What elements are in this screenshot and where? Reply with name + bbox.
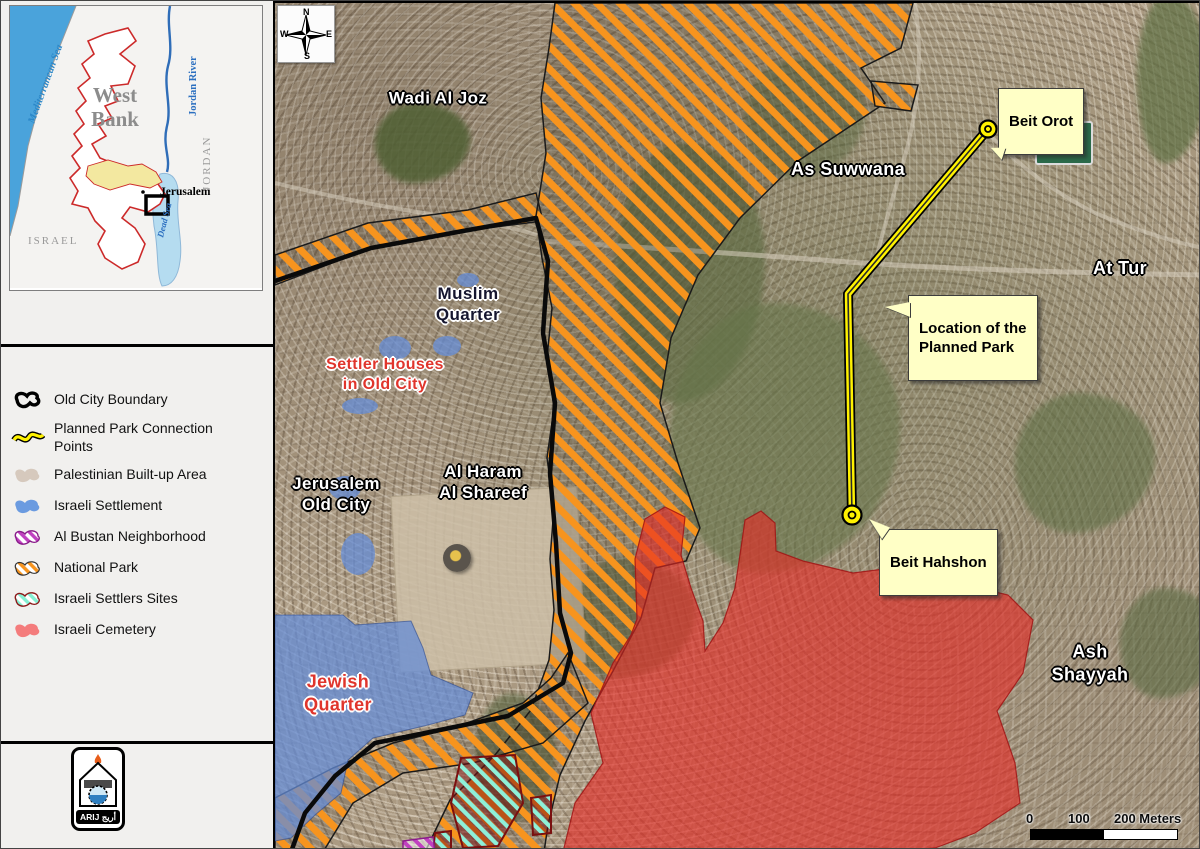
callout-beit-hahshon: Beit Hahshon (879, 529, 998, 596)
arij-logo-graphic: ARIJ أريج (74, 750, 122, 828)
national-park-icon (11, 557, 45, 579)
scale-tick-0: 0 (1026, 811, 1033, 826)
jerusalem-dot (141, 190, 145, 194)
place-label-as-suwwana: As Suwwana (791, 158, 905, 181)
panel-divider-bottom (1, 741, 273, 744)
inset-jerusalem-label: Jerusalem (160, 186, 211, 198)
place-label-at-tur: At Tur (1093, 257, 1147, 280)
logo-text: ARIJ أريج (80, 810, 117, 823)
place-label-wadi-al-joz: Wadi Al Joz (389, 87, 488, 108)
inset-west-label: West (93, 83, 137, 107)
callout-label: Location of the Planned Park (919, 320, 1027, 357)
legend-label: Israeli Cemetery (54, 621, 156, 639)
israeli-cemetery-icon (11, 619, 45, 641)
callout-beit-orot: Beit Orot (998, 88, 1084, 155)
connection-point-beit-hahshon (843, 506, 862, 525)
legend-item-israeli-settlers-sites: Israeli Settlers Sites (11, 588, 267, 610)
legend: Old City Boundary Planned Park Connectio… (11, 389, 267, 641)
compass-e: E (326, 29, 332, 39)
callout-planned-park: Location of the Planned Park (908, 295, 1038, 381)
connection-point-beit-orot (980, 121, 997, 138)
callout-pointer (885, 302, 910, 317)
arij-logo: ARIJ أريج (71, 747, 125, 831)
inset-jordan-river-label: Jordan River (188, 56, 199, 116)
legend-item-israeli-settlement: Israeli Settlement (11, 495, 267, 517)
inset-bank-label: Bank (91, 107, 139, 131)
west-bank-inset-map: West Bank Mediterranean Sea Jordan River… (9, 5, 263, 291)
place-label-al-haram: Al Haram Al Shareef (439, 461, 527, 504)
scale-bar: 0 100 200 Meters (1020, 811, 1190, 845)
legend-item-planned-park-connection: Planned Park Connection Points (11, 420, 267, 455)
planned-park-connection-icon (11, 427, 45, 449)
side-panel: West Bank Mediterranean Sea Jordan River… (1, 1, 273, 849)
legend-label: National Park (54, 559, 138, 577)
inset-israel-label: ISRAEL (28, 235, 79, 247)
satellite-map: Wadi Al Joz As Suwwana At Tur Ash Shayya… (273, 1, 1200, 849)
al-bustan-area (403, 837, 435, 849)
legend-item-old-city-boundary: Old City Boundary (11, 389, 267, 411)
compass-rose: N E S W (277, 5, 335, 63)
legend-label: Palestinian Built-up Area (54, 466, 207, 484)
compass-w: W (280, 29, 289, 39)
panel-divider-top (1, 344, 273, 347)
place-label-ash-shayyah: Ash Shayyah (1036, 641, 1145, 686)
palestinian-built-up-icon (11, 464, 45, 486)
israeli-settlers-sites-icon (11, 588, 45, 610)
legend-item-national-park: National Park (11, 557, 267, 579)
callout-label: Beit Hahshon (890, 554, 987, 571)
inset-jordan-label: JORDAN (201, 136, 213, 191)
place-label-jewish-quarter: Jewish Quarter (304, 671, 372, 716)
settlement-blob (433, 336, 461, 356)
israeli-settlement-icon (11, 495, 45, 517)
scale-tick-200: 200 Meters (1114, 811, 1181, 826)
settlement-blob (341, 533, 375, 575)
scale-tick-100: 100 (1068, 811, 1090, 826)
inset-map-graphic: West Bank Mediterranean Sea Jordan River… (10, 6, 262, 288)
legend-label: Israeli Settlement (54, 497, 162, 515)
place-label-settler-houses: Settler Houses in Old City (326, 355, 444, 395)
scale-bar-graphic (1030, 829, 1178, 840)
compass-s: S (304, 51, 310, 61)
legend-label: Al Bustan Neighborhood (54, 528, 206, 546)
legend-label: Israeli Settlers Sites (54, 590, 178, 608)
settlers-site (531, 795, 551, 835)
legend-label: Planned Park Connection Points (54, 420, 254, 455)
map-poster: West Bank Mediterranean Sea Jordan River… (0, 0, 1200, 849)
settlement-blob (342, 398, 378, 414)
national-park-patch (871, 81, 918, 111)
callout-label: Beit Orot (1009, 113, 1073, 130)
legend-item-israeli-cemetery: Israeli Cemetery (11, 619, 267, 641)
al-bustan-icon (11, 526, 45, 548)
compass-n: N (303, 7, 310, 17)
legend-label: Old City Boundary (54, 391, 168, 409)
settlers-site (433, 831, 451, 849)
old-city-boundary-icon (11, 389, 45, 411)
legend-item-palestinian-built-up: Palestinian Built-up Area (11, 464, 267, 486)
place-label-muslim-quarter: Muslim Quarter (436, 283, 500, 326)
place-label-jerusalem-old-city: Jerusalem Old City (292, 473, 380, 516)
legend-item-al-bustan: Al Bustan Neighborhood (11, 526, 267, 548)
